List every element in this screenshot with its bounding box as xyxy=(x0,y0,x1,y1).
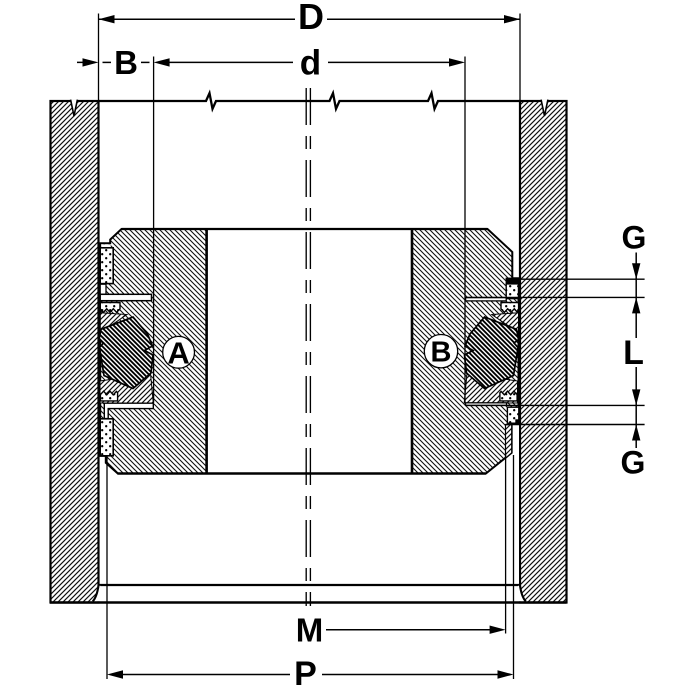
svg-text:B: B xyxy=(114,44,138,81)
svg-text:A: A xyxy=(167,336,189,371)
svg-text:B: B xyxy=(431,337,452,369)
svg-text:G: G xyxy=(621,445,646,481)
svg-text:L: L xyxy=(623,334,644,372)
svg-text:G: G xyxy=(622,219,647,255)
svg-text:d: d xyxy=(300,44,321,83)
svg-text:P: P xyxy=(294,655,317,693)
svg-text:M: M xyxy=(296,612,324,649)
svg-text:D: D xyxy=(298,0,324,37)
